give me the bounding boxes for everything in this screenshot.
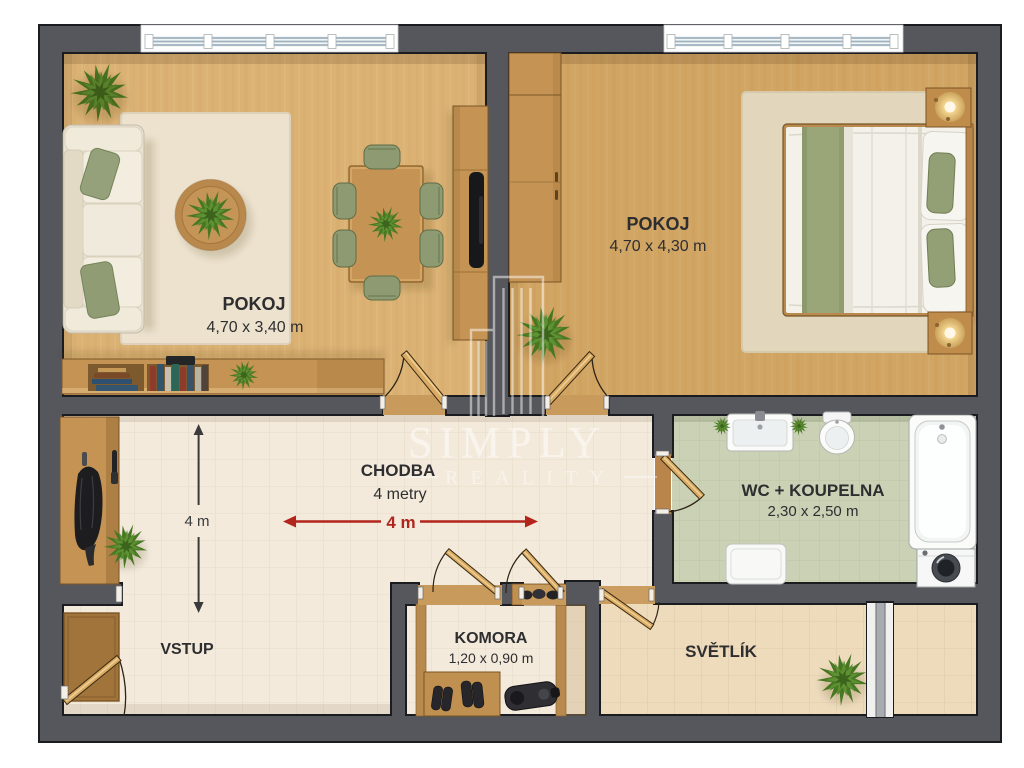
svg-text:4,70 x 4,30 m: 4,70 x 4,30 m bbox=[610, 238, 707, 255]
svg-text:4 m: 4 m bbox=[386, 513, 415, 532]
svg-text:SVĚTLÍK: SVĚTLÍK bbox=[685, 642, 758, 661]
svg-text:4 metry: 4 metry bbox=[373, 486, 426, 503]
svg-text:2,30 x 2,50 m: 2,30 x 2,50 m bbox=[768, 503, 859, 520]
svg-text:VSTUP: VSTUP bbox=[160, 641, 214, 658]
svg-text:4 m: 4 m bbox=[184, 513, 209, 530]
svg-text:REALITY: REALITY bbox=[445, 467, 615, 489]
svg-text:POKOJ: POKOJ bbox=[222, 294, 285, 314]
svg-text:WC + KOUPELNA: WC + KOUPELNA bbox=[741, 481, 884, 500]
svg-text:POKOJ: POKOJ bbox=[626, 214, 689, 234]
svg-text:1,20 x 0,90 m: 1,20 x 0,90 m bbox=[449, 650, 534, 666]
svg-text:KOMORA: KOMORA bbox=[455, 630, 528, 647]
svg-text:4,70 x 3,40 m: 4,70 x 3,40 m bbox=[207, 319, 304, 336]
svg-text:SIMPLY: SIMPLY bbox=[408, 418, 608, 467]
